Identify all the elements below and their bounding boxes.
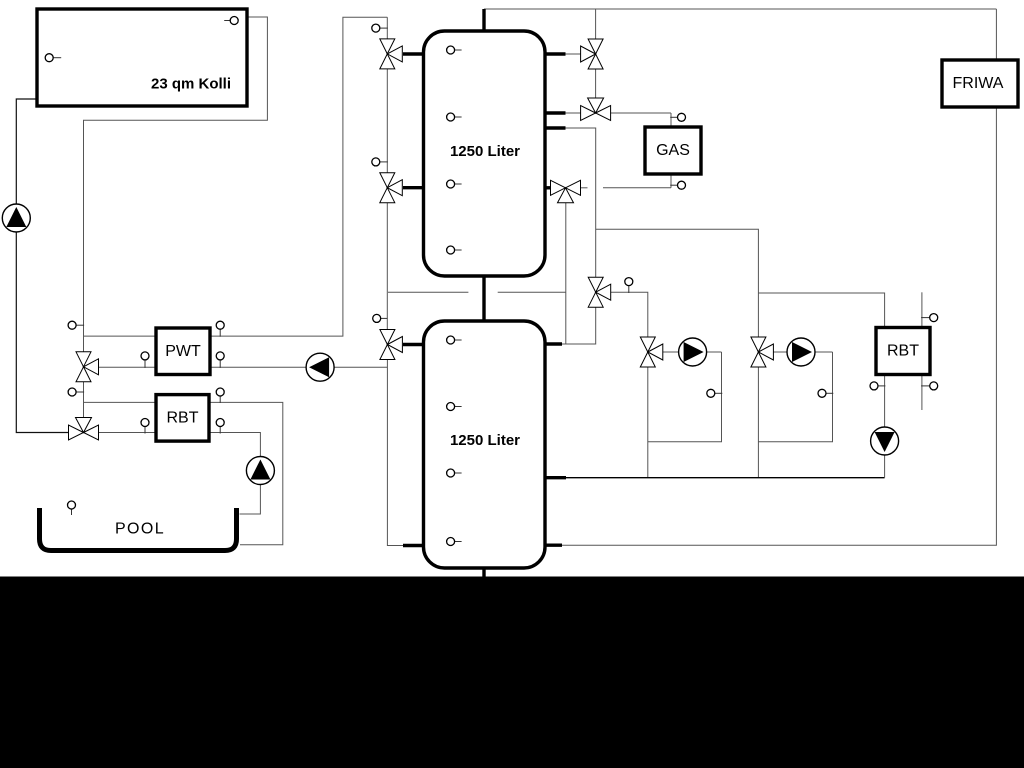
svg-text:POOL: POOL [115, 521, 165, 538]
svg-text:GAS: GAS [656, 142, 690, 159]
svg-text:RBT: RBT [887, 343, 919, 360]
svg-text:23 qm Kolli: 23 qm Kolli [151, 76, 231, 93]
svg-text:PWT: PWT [165, 343, 201, 360]
svg-text:1250 Liter: 1250 Liter [450, 432, 520, 449]
svg-text:RBT: RBT [167, 409, 199, 426]
svg-text:1250 Liter: 1250 Liter [450, 143, 520, 160]
svg-text:FRIWA: FRIWA [953, 75, 1004, 92]
